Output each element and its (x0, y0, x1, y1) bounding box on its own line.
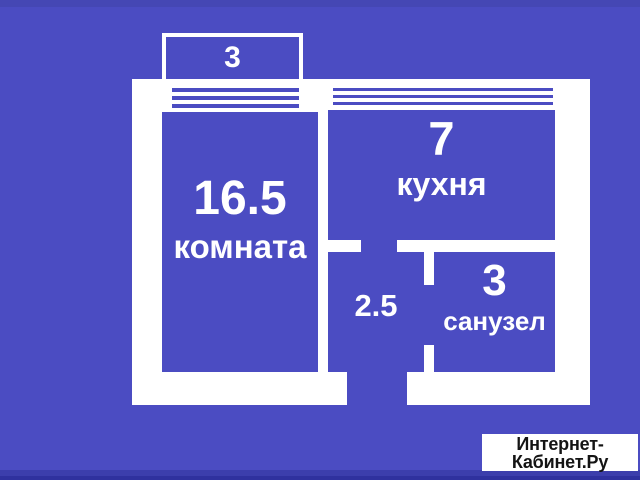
balcony-area-label: 3 (224, 41, 241, 75)
living-room-name-label: комната (162, 225, 318, 269)
floor-plan-image: 3 16.5 комната 7 кухня 2.5 3 санузел (0, 0, 640, 480)
kitchen-labels: 7 кухня (328, 114, 555, 204)
kitchen-door-opening (361, 240, 397, 253)
bottom-edge-strip (0, 476, 640, 480)
room-bathroom: 3 санузел (434, 252, 555, 372)
kitchen-window-icon (333, 88, 553, 109)
hallway-labels: 2.5 (328, 289, 424, 323)
room-hallway: 2.5 (328, 252, 424, 372)
watermark-badge: Интернет- Кабинет.Ру (482, 434, 638, 471)
bathroom-labels: 3 санузел (434, 258, 555, 338)
kitchen-name-label: кухня (328, 164, 555, 204)
hallway-area-label: 2.5 (328, 289, 424, 323)
watermark-line1: Интернет- (516, 435, 603, 453)
balcony-outline: 3 (162, 33, 303, 79)
entrance-opening (347, 371, 407, 405)
living-room-area-label: 16.5 (162, 173, 318, 225)
room-window-icon (172, 88, 299, 112)
balcony-room: 3 (166, 37, 299, 79)
room-living: 16.5 комната (162, 112, 318, 372)
kitchen-area-label: 7 (328, 114, 555, 164)
bathroom-area-label: 3 (434, 258, 555, 304)
watermark-line2: Кабинет.Ру (512, 453, 608, 471)
top-edge-strip (0, 0, 640, 7)
room-kitchen: 7 кухня (328, 110, 555, 240)
living-room-labels: 16.5 комната (162, 173, 318, 269)
bathroom-door-opening (424, 285, 434, 345)
bathroom-name-label: санузел (434, 304, 555, 338)
